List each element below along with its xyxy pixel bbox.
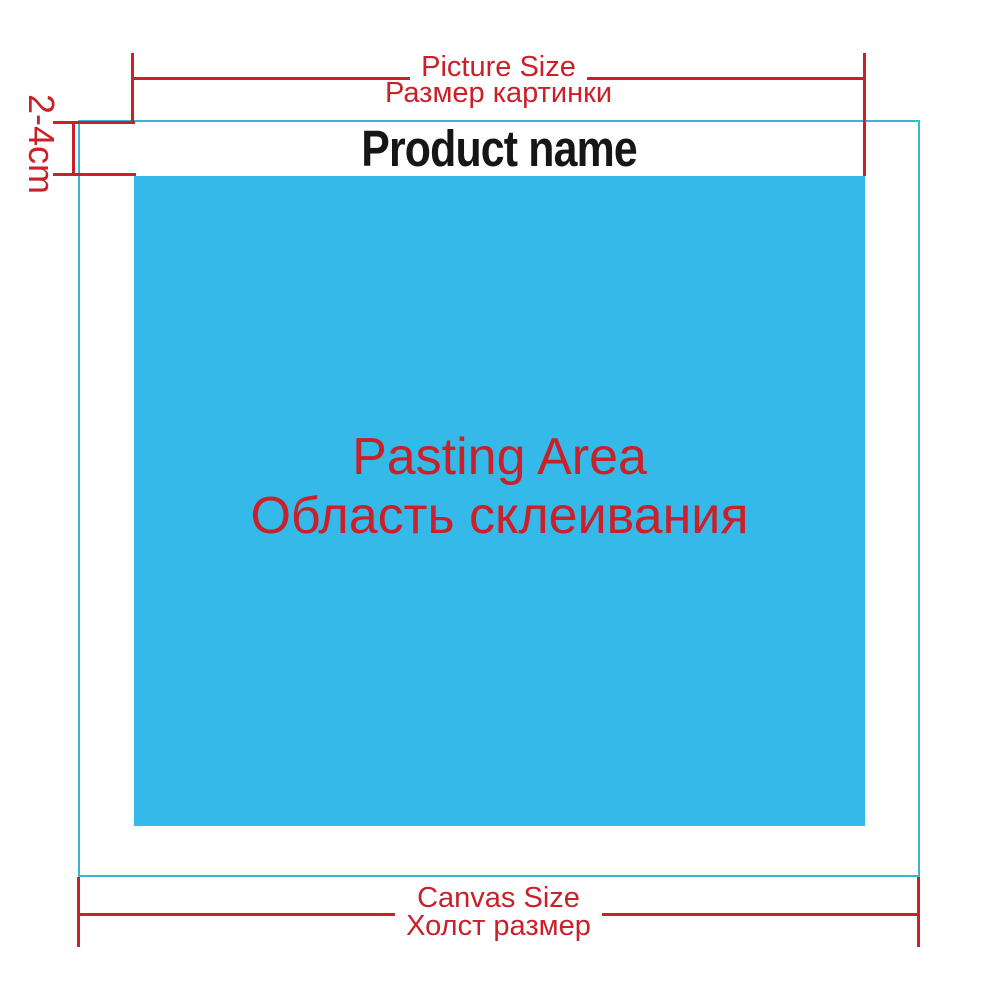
margin-bracket-bottom-line [53,173,136,176]
picture-size-label: Picture Size Размер картинки [131,54,866,106]
margin-size-label: 2-4cm [21,84,61,204]
canvas-size-label-en: Canvas Size [406,884,591,912]
pasting-area-label-en: Pasting Area [134,428,865,487]
pasting-area-label-ru: Область склеивания [134,487,865,546]
margin-bracket-vertical-line [72,121,75,176]
canvas-size-label-ru: Холст размер [395,912,602,940]
product-name: Product name [78,121,920,177]
margin-bracket-top-line [53,121,135,124]
pasting-area-label: Pasting Area Область склеивания [134,428,865,546]
canvas-size-label: Canvas Size Холст размер [77,884,920,940]
picture-size-label-ru: Размер картинки [374,80,623,106]
size-diagram: Pasting Area Область склеивания Product … [0,0,1000,1000]
product-name-text: Product name [361,121,637,177]
